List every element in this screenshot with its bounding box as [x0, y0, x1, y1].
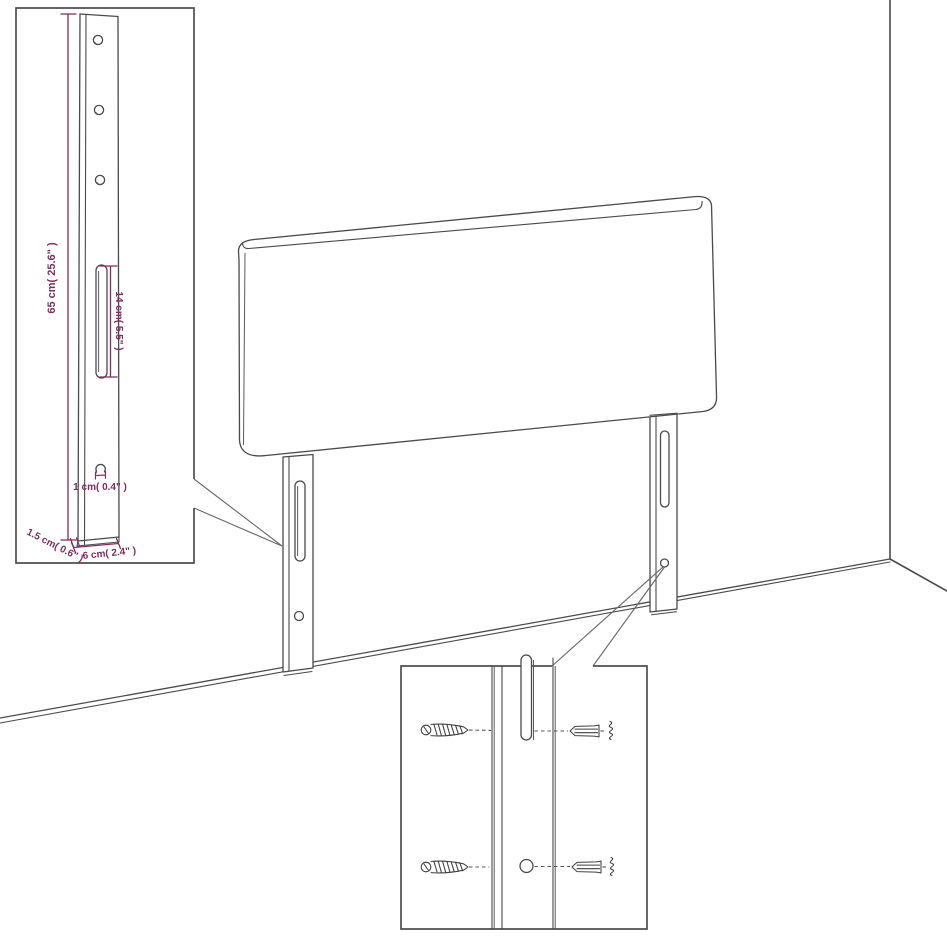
dimension-hole-diameter-label: 1 cm( 0.4" ) [73, 482, 127, 493]
hole-icon [520, 860, 533, 873]
slot-icon [96, 265, 107, 378]
screw-icon [421, 724, 468, 736]
leader-bottom-box-right [593, 567, 665, 666]
fastener-row-bottom [421, 858, 613, 876]
floor-line-left [0, 559, 890, 718]
screw-icon [421, 861, 468, 873]
dimensions: 65 cm( 25.6" ) 14 cm( 5.5" ) 1 cm( 0.4" … [25, 14, 137, 565]
dimension-leg-thickness: 1.5 cm( 0.6" ) [25, 527, 85, 565]
dimension-leg-width-label: 6 cm( 2.4" ) [82, 545, 137, 562]
detail-leg [77, 14, 119, 546]
callout-top-left: 65 cm( 25.6" ) 14 cm( 5.5" ) 1 cm( 0.4" … [16, 8, 194, 565]
hole-icon [93, 35, 102, 44]
dimension-leg-thickness-label: 1.5 cm( 0.6" ) [25, 527, 85, 565]
dimension-leg-height-label: 65 cm( 25.6" ) [46, 242, 58, 314]
headboard-left-leg [283, 455, 313, 676]
diagram-canvas: 65 cm( 25.6" ) 14 cm( 5.5" ) 1 cm( 0.4" … [0, 0, 947, 947]
dimension-slot-length: 14 cm( 5.5" ) [100, 266, 124, 377]
hole-icon [96, 464, 105, 471]
headboard-right-leg [650, 413, 677, 615]
plug-collar-icon [609, 722, 612, 740]
dimension-slot-length-label: 14 cm( 5.5" ) [113, 291, 124, 350]
plug-collar-icon [610, 858, 613, 876]
headboard [238, 197, 716, 676]
callout-top-left-border [16, 8, 194, 563]
fastener-row-top [421, 722, 612, 740]
callout-bottom [401, 655, 647, 929]
detail-leg-strip [492, 655, 555, 929]
leader-lines [194, 479, 665, 666]
leader-top-box-upper [194, 479, 282, 546]
leader-top-box-lower [194, 508, 282, 546]
slot-icon [521, 655, 532, 740]
wall-plug-icon [572, 861, 601, 873]
hole-icon [95, 175, 104, 184]
wall-plug-icon [570, 725, 599, 737]
hole-icon [94, 105, 103, 114]
floor-line-left-inner [0, 562, 890, 723]
headboard-panel [238, 197, 716, 456]
dimension-leg-height: 65 cm( 25.6" ) [46, 14, 76, 540]
floor-line-right [890, 559, 947, 591]
